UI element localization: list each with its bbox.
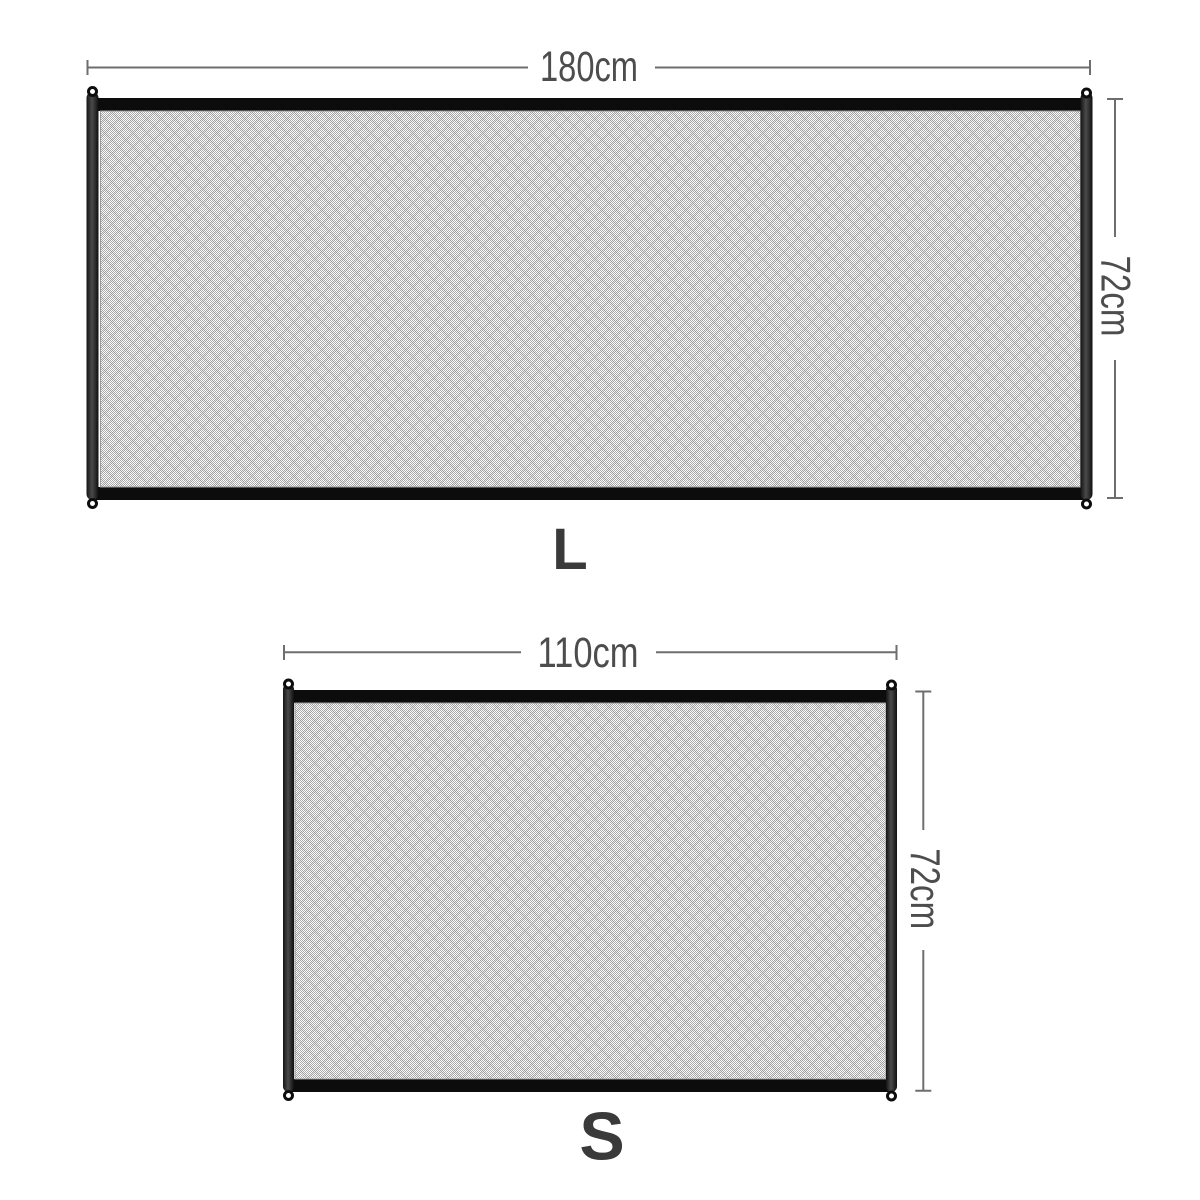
svg-text:L: L: [552, 517, 587, 582]
svg-text:110cm: 110cm: [538, 629, 639, 677]
svg-text:72cm: 72cm: [902, 848, 949, 929]
svg-text:72cm: 72cm: [1093, 256, 1140, 337]
svg-text:180cm: 180cm: [540, 43, 638, 91]
svg-text:S: S: [579, 1099, 624, 1175]
